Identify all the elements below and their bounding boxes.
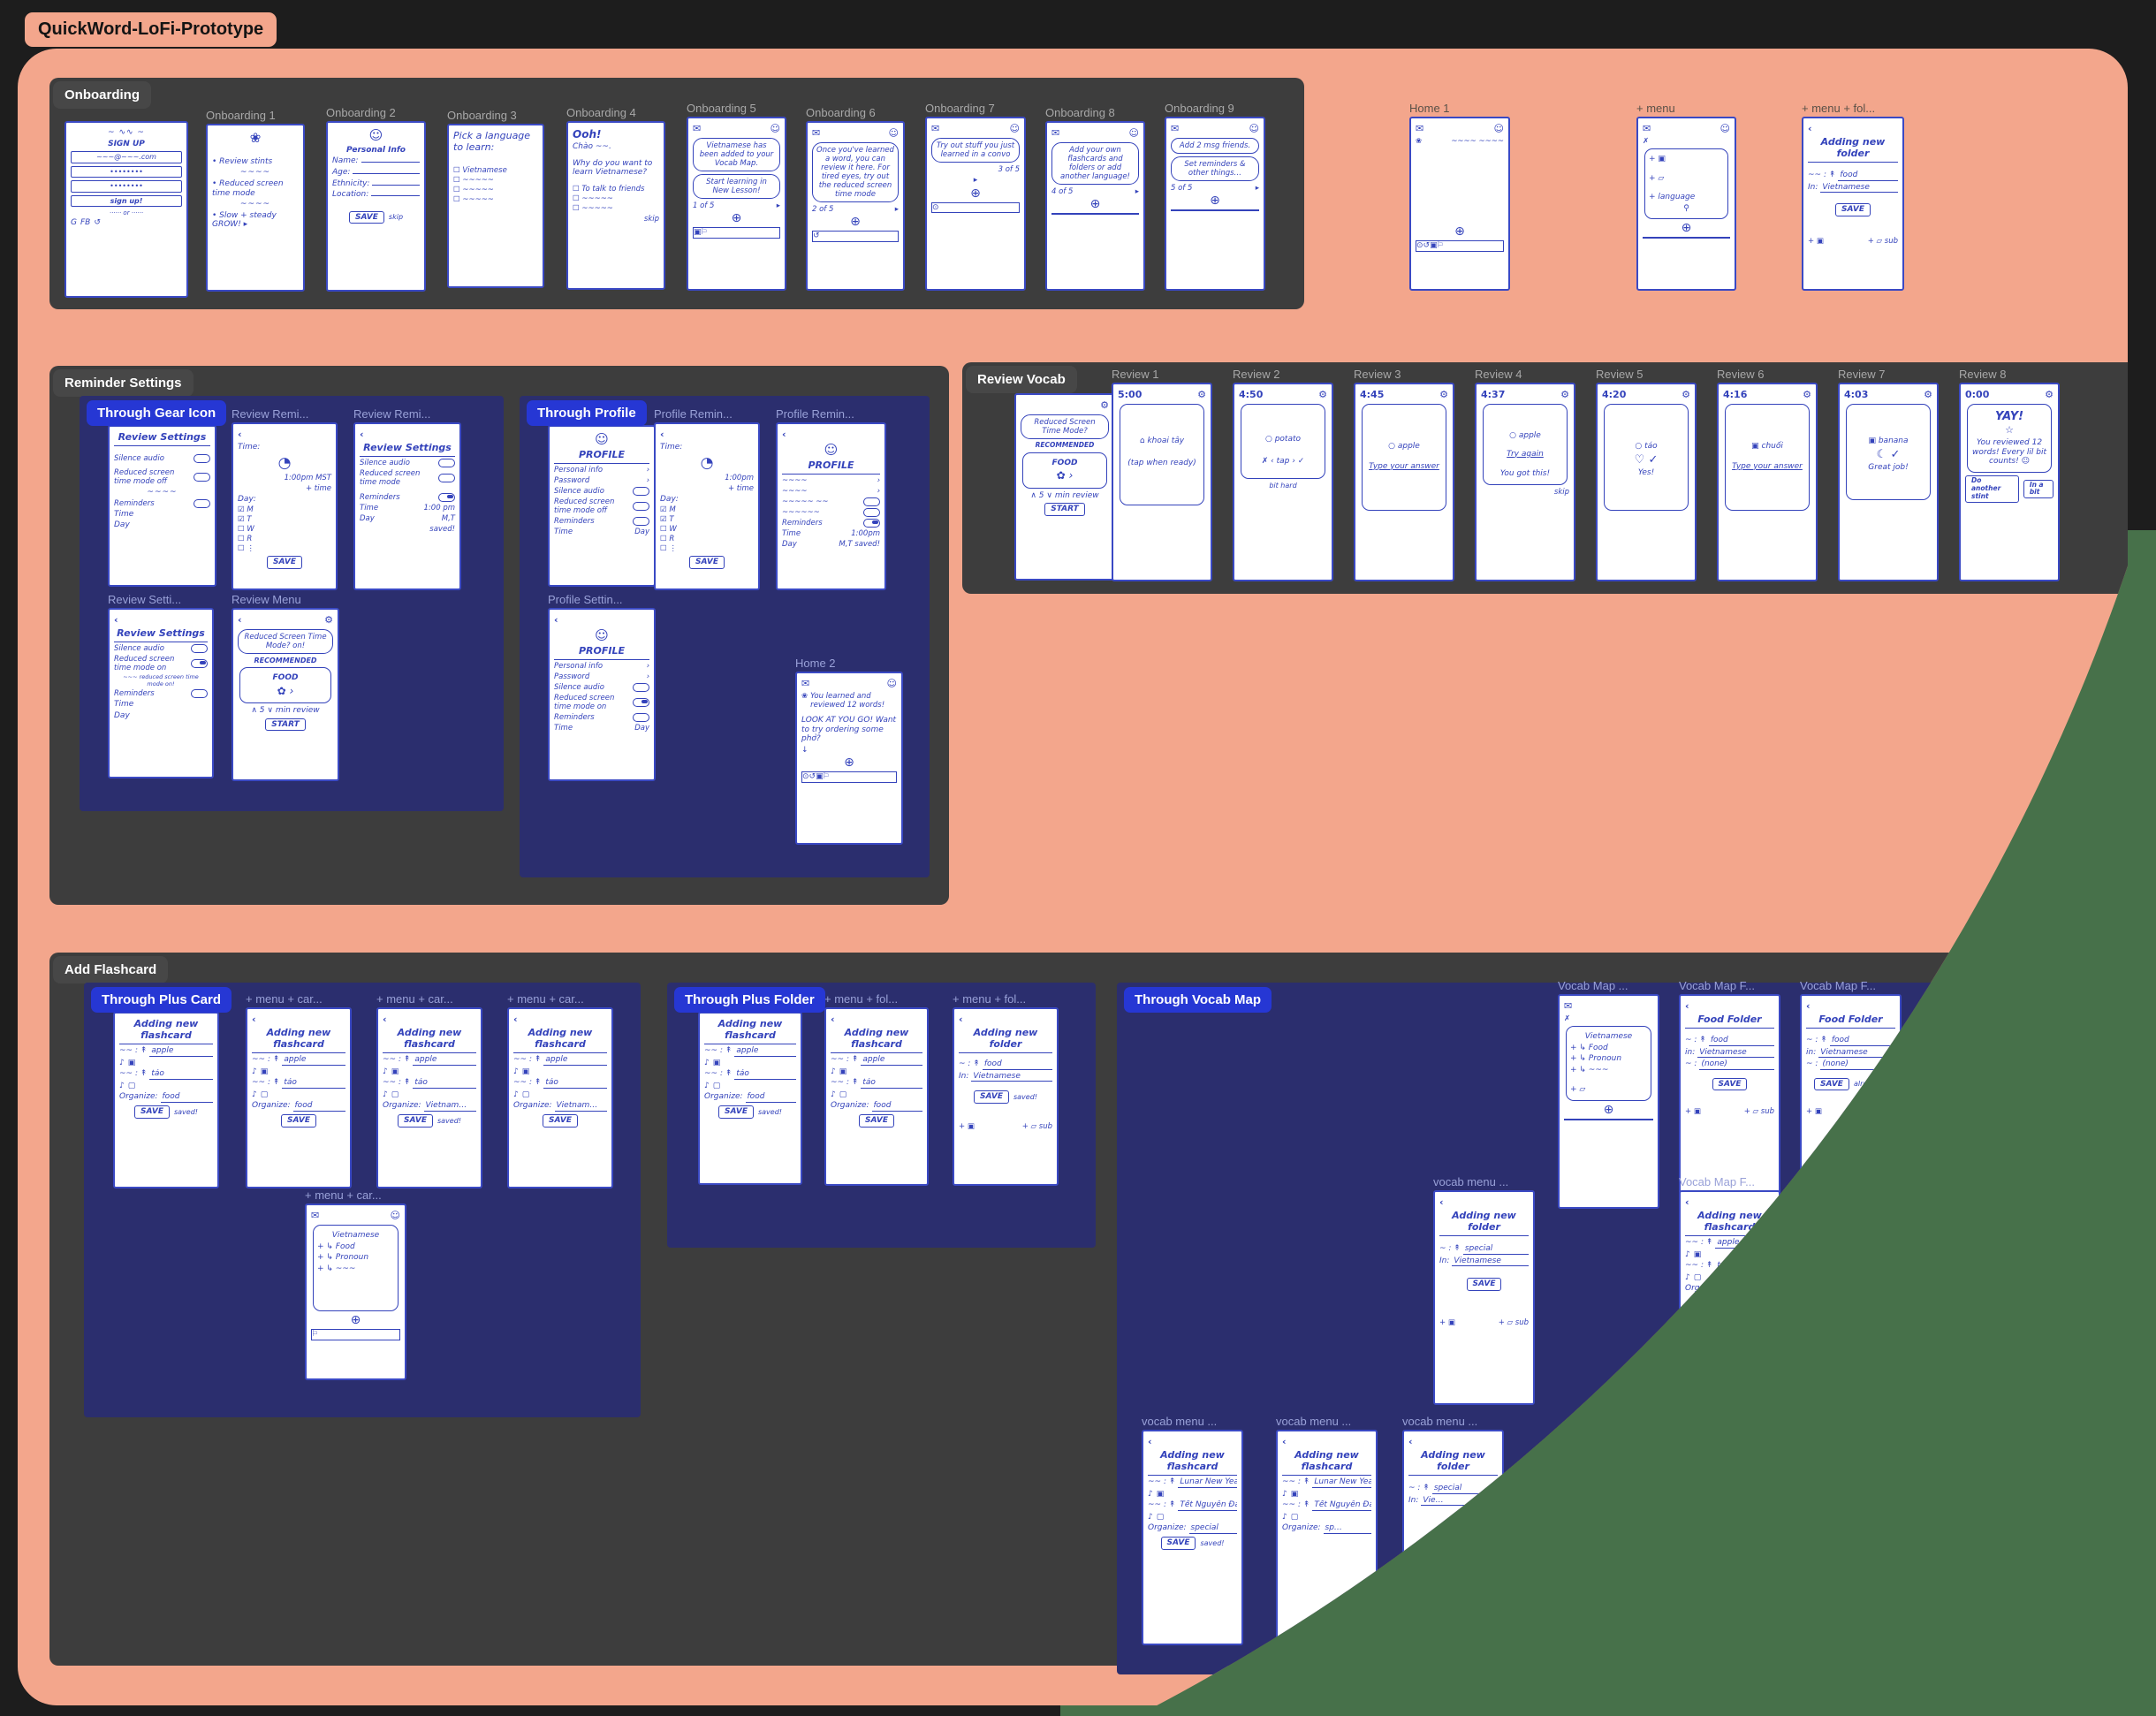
inner-card[interactable]: ⌂ khoai tây(tap when ready) <box>1120 404 1204 505</box>
frame-label-review-settings-on[interactable]: Review Setti... <box>108 593 181 606</box>
save-button[interactable]: SAVE <box>689 556 725 569</box>
field[interactable]: ~~ : ↟apple <box>831 1055 922 1066</box>
frame-review-8[interactable]: 0:00⚙YAY!☆You reviewed 12 words! Every l… <box>1959 383 2060 581</box>
toggle-switch[interactable] <box>191 659 208 668</box>
toggle-switch[interactable] <box>633 713 649 722</box>
statusbar-left-icon[interactable]: ‹ <box>959 1014 963 1026</box>
frame-menu-fol-card[interactable]: ‹Adding new flashcard~~ : ↟apple♪▣~~ : ↟… <box>824 1007 929 1186</box>
statusbar-left-icon[interactable]: 4:37 <box>1481 390 1505 401</box>
toggle-switch[interactable] <box>191 689 208 698</box>
audio-icon[interactable]: ♪ <box>252 1067 257 1077</box>
frame-onboarding-5[interactable]: ✉☺Vietnamese has been added to your Voca… <box>687 117 786 291</box>
bottom-navbar[interactable]: ⊙↺▣⚐ <box>1416 240 1504 252</box>
frame-home-1[interactable]: ✉☺❀~~~~ ~~~~⊕⊙↺▣⚐ <box>1409 117 1510 291</box>
frame-vocab-map-menu[interactable]: ✉✗Vietnamese+ ↳ Food+ ↳ Pronoun+ ↳ ~~~+ … <box>1558 994 1659 1209</box>
statusbar-left-icon[interactable]: ‹ <box>831 1014 835 1026</box>
frame-review-6[interactable]: 4:16⚙▣ chuốiType your answer <box>1717 383 1818 581</box>
image-icon[interactable]: ▣ <box>1291 1490 1299 1500</box>
field[interactable]: ~~ : ↟táo <box>513 1078 607 1089</box>
statusbar-left-icon[interactable]: ‹ <box>1148 1437 1152 1448</box>
inner-card[interactable]: ▣ chuốiType your answer <box>1725 404 1810 511</box>
audio-icon[interactable]: ♪ <box>119 1082 125 1091</box>
field[interactable]: Organize:food <box>831 1101 922 1112</box>
checkbox-item[interactable]: ☐ W <box>660 525 754 534</box>
checkbox-item[interactable]: ☐ ~~~~~ <box>453 195 538 204</box>
field[interactable]: Ethnicity: <box>332 179 420 189</box>
frame-profile-reminder-saved[interactable]: ‹☺PROFILE~~~~›~~~~›~~~~~ ~~~~~~~~Reminde… <box>776 422 886 590</box>
navbar-cell-icon[interactable]: ⚐ <box>312 1330 318 1340</box>
statusbar-left-icon[interactable]: ‹ <box>554 615 558 626</box>
frame-label-onboarding-4[interactable]: Onboarding 4 <box>566 106 636 119</box>
audio-icon[interactable]: ♪ <box>513 1090 519 1100</box>
frame-label-onboarding-3[interactable]: Onboarding 3 <box>447 109 517 122</box>
frame-label-menu-card-vietnamese-saved[interactable]: + menu + car... <box>376 992 453 1006</box>
field-value[interactable]: apple <box>734 1046 796 1057</box>
bottom-navbar[interactable] <box>1051 213 1139 215</box>
image-icon[interactable]: ▢ <box>1694 1273 1702 1283</box>
toggle[interactable]: Silence audio <box>554 683 649 692</box>
frame-label-home-1[interactable]: Home 1 <box>1409 102 1450 115</box>
frame-profile-settings-on[interactable]: ‹☺PROFILEPersonal info›Password›Silence … <box>548 608 656 781</box>
field-value[interactable]: food <box>1830 1036 1895 1046</box>
frame-label-review-4[interactable]: Review 4 <box>1475 368 1522 381</box>
statusbar-left-icon[interactable]: ✉ <box>311 1211 319 1222</box>
field[interactable]: ~~ : ↟apple <box>252 1055 345 1066</box>
frame-profile-reminder-time[interactable]: ‹Time:◔1:00pm+ timeDay:☑ M☑ T☐ W☐ R☐ ⋮SA… <box>654 422 760 590</box>
field[interactable]: ~~ : ↟apple <box>513 1055 607 1066</box>
field-value[interactable]: táo <box>282 1078 345 1089</box>
audio-icon[interactable]: ♪ <box>252 1090 257 1100</box>
field-value[interactable]: apple <box>543 1055 607 1066</box>
toggle-switch[interactable] <box>438 474 455 482</box>
statusbar-right-icon[interactable]: ☺ <box>1010 124 1020 135</box>
save-button[interactable]: SAVE <box>1712 1078 1748 1091</box>
frame-label-vocab-menu-lunar[interactable]: vocab menu ... <box>1276 1415 1351 1428</box>
statusbar-left-icon[interactable]: ‹ <box>238 615 242 626</box>
audio-icon[interactable]: ♪ <box>383 1067 388 1077</box>
input-box[interactable]: ~~~@~~~.com <box>71 151 182 163</box>
field-value[interactable]: food <box>983 1059 1052 1070</box>
frame-label-review-6[interactable]: Review 6 <box>1717 368 1764 381</box>
statusbar-left-icon[interactable]: ‹ <box>1808 124 1812 135</box>
frame-label-review-reminder-saved[interactable]: Review Remi... <box>353 407 430 421</box>
statusbar-left-icon[interactable]: 4:45 <box>1360 390 1384 401</box>
checkbox-item[interactable]: ☐ ~~~~~ <box>453 186 538 194</box>
toggle-switch[interactable] <box>633 698 649 707</box>
navbar-cell-icon[interactable]: ⚐ <box>824 772 830 782</box>
image-icon[interactable]: G <box>71 218 77 228</box>
statusbar-left-icon[interactable]: ‹ <box>383 1014 387 1026</box>
audio-icon[interactable]: ♪ <box>831 1067 836 1077</box>
field[interactable]: ~~ : ↟táo <box>383 1078 476 1089</box>
toggle[interactable]: Silence audio <box>114 644 208 653</box>
save-button[interactable]: SAVE <box>1467 1278 1502 1291</box>
frame-label-onboarding-8[interactable]: Onboarding 8 <box>1045 106 1115 119</box>
frame-label-review-3[interactable]: Review 3 <box>1354 368 1401 381</box>
navbar-cell-icon[interactable]: ⊙ <box>802 772 809 782</box>
statusbar-right-icon[interactable]: ⚙ <box>1100 400 1109 412</box>
field[interactable]: Organize:food <box>252 1101 345 1112</box>
navbar-cell-icon[interactable]: ↺ <box>809 772 816 782</box>
image-icon[interactable]: ▢ <box>522 1090 530 1100</box>
field-value[interactable]: táo <box>543 1078 607 1089</box>
section-tab-add-flashcard[interactable]: Add Flashcard <box>53 956 168 983</box>
frame-review-5[interactable]: 4:20⚙○ táo♡ ✓Yes! <box>1596 383 1697 581</box>
toggle-switch[interactable] <box>863 497 880 506</box>
image-icon[interactable]: ▣ <box>1694 1250 1702 1260</box>
frame-label-menu-card-vietnamese[interactable]: + menu + car... <box>507 992 584 1006</box>
field[interactable]: ~~ : ↟táo <box>119 1069 213 1080</box>
field-value[interactable]: Tết Nguyên Đán <box>1178 1500 1237 1511</box>
bottom-navbar[interactable] <box>1564 1119 1653 1120</box>
statusbar-right-icon[interactable]: ☺ <box>887 679 897 690</box>
checkbox-item[interactable]: ☐ ⋮ <box>238 544 331 553</box>
frame-review-menu[interactable]: ‹⚙Reduced Screen Time Mode? on!RECOMMEND… <box>232 608 339 781</box>
toggle-switch[interactable] <box>194 473 210 482</box>
plus-button[interactable]: ⊕ <box>931 187 1020 200</box>
field[interactable]: ~~ : ↟apple <box>704 1046 796 1057</box>
save-button[interactable]: SAVE <box>543 1114 578 1128</box>
navbar-cell-icon[interactable]: ⚐ <box>702 228 708 238</box>
navbar-cell-icon[interactable]: ⊙ <box>1416 241 1423 251</box>
plus-button[interactable]: ⊕ <box>1051 198 1139 210</box>
field-value[interactable]: táo <box>861 1078 922 1089</box>
field-value[interactable]: Vietnamese <box>1452 1257 1529 1267</box>
frame-label-review-8[interactable]: Review 8 <box>1959 368 2006 381</box>
frame-label-review-reminder-time[interactable]: Review Remi... <box>232 407 308 421</box>
plus-button[interactable]: ⊕ <box>693 212 780 224</box>
field-value[interactable]: food <box>1709 1036 1774 1046</box>
section-tab-reminder-settings[interactable]: Reminder Settings <box>53 369 194 397</box>
frame-label-vocab-map-menu[interactable]: Vocab Map ... <box>1558 979 1628 992</box>
board-tag-through-gear-icon[interactable]: Through Gear Icon <box>87 400 226 426</box>
field[interactable]: Organize:Vietnam… <box>513 1101 607 1112</box>
toggle-switch[interactable] <box>191 644 208 653</box>
audio-icon[interactable]: ♪ <box>704 1082 710 1091</box>
toggle[interactable]: Silence audio <box>554 487 649 496</box>
frame-plus-menu[interactable]: ✉☺✗+ ▣+ ▱+ language⚲⊕ <box>1636 117 1736 291</box>
bottom-navbar[interactable] <box>1643 237 1730 239</box>
frame-label-menu-fol-new-folder[interactable]: + menu + fol... <box>953 992 1026 1006</box>
save-button[interactable]: SAVE <box>267 556 302 569</box>
checkbox-item[interactable]: ☐ R <box>238 535 331 543</box>
statusbar-right-icon[interactable]: ☺ <box>391 1211 400 1222</box>
inner-card[interactable]: ▣ banana☾ ✓Great job! <box>1846 404 1931 500</box>
statusbar-left-icon[interactable]: 5:00 <box>1118 390 1142 401</box>
frame-label-review-2[interactable]: Review 2 <box>1233 368 1279 381</box>
frame-onboarding-3[interactable]: Pick a language to learn:☐ Vietnamese☐ ~… <box>447 124 544 288</box>
field[interactable]: Name: <box>332 156 420 166</box>
save-button[interactable]: SAVE <box>134 1105 170 1119</box>
frame-label-menu-fol-card[interactable]: + menu + fol... <box>824 992 898 1006</box>
plus-button[interactable]: ⊕ <box>1643 222 1730 234</box>
field-value[interactable]: Vietnamese <box>971 1072 1052 1082</box>
frame-profile-menu[interactable]: ☺PROFILEPersonal info›Password›Silence a… <box>548 425 656 587</box>
field[interactable]: ~~ : ↟Tết Nguyên Đán <box>1148 1500 1237 1511</box>
frame-menu-card-food[interactable]: ‹Adding new flashcard~~ : ↟apple♪▣~~ : ↟… <box>246 1007 352 1188</box>
frame-menu-card-vocab-list[interactable]: ✉☺Vietnamese+ ↳ Food+ ↳ Pronoun+ ↳ ~~~⊕⚐ <box>305 1203 406 1380</box>
save-button[interactable]: SAVE <box>398 1114 433 1128</box>
statusbar-right-icon[interactable]: ⚙ <box>1318 390 1327 401</box>
frame-review-1[interactable]: 5:00⚙⌂ khoai tây(tap when ready) <box>1112 383 1212 581</box>
navbar-cell-icon[interactable]: ⊙ <box>932 203 939 213</box>
statusbar-right-icon[interactable]: ⚙ <box>1924 390 1932 401</box>
save-button[interactable]: SAVE <box>1161 1537 1196 1550</box>
save-button[interactable]: SAVE <box>859 1114 894 1128</box>
board-tag-through-plus-card[interactable]: Through Plus Card <box>91 987 232 1013</box>
frame-onboarding-2[interactable]: ☺Personal InfoName: Age: Ethnicity: Loca… <box>326 121 426 292</box>
field[interactable]: in:Vietnamese <box>1685 1048 1774 1059</box>
field[interactable]: In:Vietnamese <box>959 1072 1052 1082</box>
field-value[interactable]: Tết Nguyên Đán <box>1312 1500 1371 1511</box>
statusbar-right-icon[interactable]: ☺ <box>1494 124 1504 135</box>
frame-label-profile-reminder-time[interactable]: Profile Remin... <box>654 407 733 421</box>
statusbar-left-icon[interactable]: 4:20 <box>1602 390 1626 401</box>
statusbar-right-icon[interactable]: ⚙ <box>1682 390 1690 401</box>
toggle[interactable]: Silence audio <box>114 454 210 463</box>
inner-card[interactable]: ○ appleType your answer <box>1362 404 1446 511</box>
field-value[interactable] <box>353 173 420 174</box>
frame-vocab-menu-lunar-saved[interactable]: ‹Adding new flashcard~~ : ↟Lunar New Yea… <box>1142 1430 1243 1645</box>
frame-vocab-menu-new-folder[interactable]: ‹Adding new folder~ : ↟specialIn:Vietnam… <box>1433 1190 1535 1405</box>
field-value[interactable]: food <box>293 1101 345 1112</box>
field-value[interactable]: food <box>161 1092 213 1103</box>
statusbar-left-icon[interactable]: ‹ <box>660 429 664 441</box>
statusbar-left-icon[interactable]: ✉ <box>1643 124 1651 135</box>
frame-label-onboarding-1[interactable]: Onboarding 1 <box>206 109 276 122</box>
inner-card[interactable]: ○ potato✗ ‹ tap › ✓ <box>1241 404 1325 479</box>
statusbar-left-icon[interactable]: ‹ <box>782 429 786 441</box>
plus-button[interactable]: ⊕ <box>1416 225 1504 238</box>
frame-label-vocab-map-food-folder-2[interactable]: Vocab Map F... <box>1800 979 1876 992</box>
image-icon[interactable]: ▢ <box>1291 1513 1299 1522</box>
statusbar-right-icon[interactable]: ☺ <box>1720 124 1730 135</box>
field-value[interactable]: Vietnam… <box>555 1101 607 1112</box>
checkbox-item[interactable]: ☐ Vietnamese <box>453 166 538 175</box>
statusbar-left-icon[interactable]: ✉ <box>1171 124 1179 135</box>
image-icon[interactable]: ▢ <box>261 1090 269 1100</box>
image-icon[interactable]: FB <box>80 218 90 228</box>
frame-onboarding-1[interactable]: ❀• Review stints~~~~• Reduced screen tim… <box>206 124 305 292</box>
field-value[interactable]: apple <box>282 1055 345 1066</box>
field[interactable]: ~ :(none) <box>1685 1059 1774 1070</box>
toggle-switch[interactable] <box>633 502 649 511</box>
audio-icon[interactable]: ♪ <box>1148 1490 1153 1500</box>
field-value[interactable]: special <box>1189 1523 1237 1534</box>
statusbar-right-icon[interactable]: ⚙ <box>1439 390 1448 401</box>
statusbar-right-icon[interactable]: ☺ <box>889 128 899 140</box>
statusbar-left-icon[interactable]: ‹ <box>1685 1001 1689 1013</box>
field[interactable]: Organize:food <box>119 1092 213 1103</box>
statusbar-right-icon[interactable]: ☺ <box>771 124 780 135</box>
board-tag-through-profile[interactable]: Through Profile <box>527 400 647 426</box>
inner-card[interactable]: Vietnamese+ ↳ Food+ ↳ Pronoun+ ↳ ~~~ <box>313 1225 399 1311</box>
bottom-navbar[interactable]: ⚐ <box>311 1329 400 1340</box>
frame-review-reminder-saved[interactable]: ‹Review SettingsSilence audioReduced scr… <box>353 422 461 590</box>
field-value[interactable]: Vietnamese <box>1820 183 1898 194</box>
toggle-switch[interactable] <box>633 487 649 496</box>
frame-onboarding-4[interactable]: Ooh!Chào ~~.Why do you want to learn Vie… <box>566 121 665 290</box>
frame-folder-card-food-saved[interactable]: Adding new flashcard~~ : ↟apple♪▣~~ : ↟t… <box>698 1012 802 1185</box>
field-value[interactable]: apple <box>413 1055 476 1066</box>
statusbar-left-icon[interactable]: ✉ <box>1051 128 1059 140</box>
field[interactable]: Organize:special <box>1148 1523 1237 1534</box>
toggle-switch[interactable] <box>633 683 649 692</box>
field-value[interactable]: Vietnam… <box>424 1101 476 1112</box>
toggle[interactable]: Reduced screen time mode off <box>554 497 649 515</box>
toggle[interactable]: ~~~~~ ~~ <box>782 497 880 506</box>
frame-label-profile-reminder-saved[interactable]: Profile Remin... <box>776 407 854 421</box>
checkbox-item[interactable]: ☐ ~~~~~ <box>453 176 538 185</box>
field-value[interactable]: Lunar New Year <box>1178 1477 1237 1488</box>
field-value[interactable]: táo <box>413 1078 476 1089</box>
frame-label-review-5[interactable]: Review 5 <box>1596 368 1643 381</box>
bottom-navbar[interactable]: ↺ <box>812 231 899 242</box>
statusbar-left-icon[interactable]: ‹ <box>238 429 242 441</box>
page-title-tab[interactable]: QuickWord-LoFi-Prototype <box>25 12 277 47</box>
image-icon[interactable]: ▢ <box>839 1090 847 1100</box>
field-value[interactable]: (none) <box>1699 1059 1774 1070</box>
plus-button[interactable]: ⊕ <box>801 756 897 769</box>
frame-label-vocab-menu-lunar-saved[interactable]: vocab menu ... <box>1142 1415 1217 1428</box>
checkbox-item[interactable]: ☑ M <box>238 505 331 514</box>
checkbox-item[interactable]: ☑ M <box>660 505 754 514</box>
frame-signup[interactable]: ~ ∿∿ ~SIGN UP~~~@~~~.com••••••••••••••••… <box>65 121 188 298</box>
field-value[interactable]: táo <box>149 1069 213 1080</box>
frame-label-onboarding-7[interactable]: Onboarding 7 <box>925 102 995 115</box>
frame-label-menu-card-vocab-list[interactable]: + menu + car... <box>305 1188 382 1202</box>
board-tag-through-plus-folder[interactable]: Through Plus Folder <box>674 987 825 1013</box>
statusbar-left-icon[interactable]: ✉ <box>812 128 820 140</box>
field[interactable]: Organize:sp… <box>1282 1523 1371 1534</box>
audio-icon[interactable]: ♪ <box>831 1090 836 1100</box>
statusbar-left-icon[interactable]: ‹ <box>1806 1001 1811 1013</box>
bottom-navbar[interactable]: ⊙↺▣⚐ <box>801 771 897 783</box>
statusbar-left-icon[interactable]: ✉ <box>931 124 939 135</box>
frame-label-onboarding-2[interactable]: Onboarding 2 <box>326 106 396 119</box>
checkbox-item[interactable]: ☑ T <box>238 515 331 524</box>
image-icon[interactable]: ▣ <box>391 1067 399 1077</box>
frame-review-4[interactable]: 4:37⚙○ appleTry againYou got this!skip <box>1475 383 1575 581</box>
field[interactable]: ~ : ↟special <box>1439 1244 1529 1255</box>
field-value[interactable]: apple <box>861 1055 922 1066</box>
inner-card[interactable]: FOOD✿ › <box>1022 452 1107 489</box>
frame-label-plus-menu-folder[interactable]: + menu + fol... <box>1802 102 1875 115</box>
toggle-switch[interactable] <box>438 459 455 467</box>
frame-review-settings-on[interactable]: ‹Review SettingsSilence audioReduced scr… <box>108 608 214 778</box>
frame-label-menu-card-food[interactable]: + menu + car... <box>246 992 323 1006</box>
field[interactable]: ~~ : ↟táo <box>704 1069 796 1080</box>
checkbox-item[interactable]: ☐ R <box>660 535 754 543</box>
field[interactable]: ~~ : ↟táo <box>252 1078 345 1089</box>
frame-label-profile-settings-on[interactable]: Profile Settin... <box>548 593 623 606</box>
audio-icon[interactable]: ♪ <box>1282 1513 1287 1522</box>
toggle[interactable]: Reduced screen time mode off <box>114 468 210 486</box>
field[interactable]: ~ : ↟food <box>1806 1036 1895 1046</box>
statusbar-left-icon[interactable]: 4:16 <box>1723 390 1747 401</box>
choice-button[interactable]: In a bit <box>2023 480 2054 499</box>
field[interactable]: ~~ : ↟food <box>1808 171 1898 181</box>
field[interactable]: In:Vietnamese <box>1439 1257 1529 1267</box>
inner-card[interactable]: + ▣+ ▱+ language⚲ <box>1644 148 1728 219</box>
navbar-cell-icon[interactable]: ⚐ <box>1438 241 1444 251</box>
toggle[interactable]: Reduced screen time mode <box>360 469 455 487</box>
frame-review-reminder-time[interactable]: ‹Time:◔1:00pm MST+ timeDay:☑ M☑ T☐ W☐ R☐… <box>232 422 338 590</box>
field-value[interactable]: Vietnamese <box>1697 1048 1774 1059</box>
frame-review-vocab-start[interactable]: ⚙Reduced Screen Time Mode?RECOMMENDEDFOO… <box>1014 393 1115 581</box>
audio-icon[interactable]: ♪ <box>1148 1513 1153 1522</box>
statusbar-left-icon[interactable]: ‹ <box>1685 1197 1689 1209</box>
bottom-navbar[interactable] <box>1171 209 1259 211</box>
field[interactable]: Location: <box>332 190 420 200</box>
field[interactable]: ~~ : ↟Lunar New Year <box>1148 1477 1237 1488</box>
field-value[interactable]: táo <box>734 1069 796 1080</box>
image-icon[interactable]: ↺ <box>94 218 101 228</box>
start-button[interactable]: START <box>265 718 306 732</box>
statusbar-left-icon[interactable]: ✉ <box>693 124 701 135</box>
field-value[interactable] <box>372 185 420 186</box>
image-icon[interactable]: ▣ <box>1157 1490 1165 1500</box>
input-box[interactable]: •••••••• <box>71 166 182 178</box>
image-icon[interactable]: ▢ <box>713 1082 721 1091</box>
frame-label-vocab-map-food-folder[interactable]: Vocab Map F... <box>1679 979 1755 992</box>
field-value[interactable]: apple <box>149 1046 213 1057</box>
bottom-navbar[interactable]: ▣⚐ <box>693 227 780 239</box>
frame-label-onboarding-9[interactable]: Onboarding 9 <box>1165 102 1234 115</box>
toggle[interactable]: Reduced screen time mode on <box>114 655 208 672</box>
field[interactable]: in:Vietnamese <box>1806 1048 1895 1059</box>
toggle[interactable]: Reminders <box>114 689 208 698</box>
field[interactable]: ~ : ↟food <box>959 1059 1052 1070</box>
audio-icon[interactable]: ♪ <box>119 1059 125 1068</box>
statusbar-left-icon[interactable]: ‹ <box>1282 1437 1287 1448</box>
frame-label-onboarding-6[interactable]: Onboarding 6 <box>806 106 876 119</box>
statusbar-left-icon[interactable]: 4:03 <box>1844 390 1868 401</box>
field[interactable]: ~~ : ↟Lunar New Year <box>1282 1477 1371 1488</box>
frame-menu-fol-new-folder[interactable]: ‹Adding new folder~ : ↟foodIn:Vietnamese… <box>953 1007 1059 1186</box>
save-button[interactable]: SAVE <box>974 1090 1009 1104</box>
input-box[interactable]: sign up! <box>71 195 182 207</box>
statusbar-right-icon[interactable]: ⚙ <box>1197 390 1206 401</box>
statusbar-left-icon[interactable]: ‹ <box>114 615 118 626</box>
toggle[interactable]: Reminders <box>554 517 649 526</box>
frame-label-onboarding-5[interactable]: Onboarding 5 <box>687 102 756 115</box>
plus-button[interactable]: ⊕ <box>311 1314 400 1326</box>
checkbox-item[interactable]: ☐ To talk to friends <box>573 185 659 194</box>
bottom-navbar[interactable]: ⊙ <box>931 202 1020 214</box>
field[interactable]: In:Vietnamese <box>1808 183 1898 194</box>
statusbar-left-icon[interactable]: ✉ <box>801 679 809 690</box>
checkbox-item[interactable]: ☐ ⋮ <box>660 544 754 553</box>
plus-button[interactable]: ⊕ <box>1171 194 1259 207</box>
save-button[interactable]: SAVE <box>281 1114 316 1128</box>
statusbar-right-icon[interactable]: ⚙ <box>2045 390 2054 401</box>
toggle[interactable]: Reminders <box>114 499 210 508</box>
navbar-cell-icon[interactable]: ↺ <box>1423 241 1431 251</box>
checkbox-item[interactable]: ☐ W <box>238 525 331 534</box>
audio-icon[interactable]: ♪ <box>383 1090 388 1100</box>
image-icon[interactable]: ▣ <box>522 1067 530 1077</box>
toggle[interactable]: ~~~~~~ <box>782 508 880 517</box>
field-value[interactable]: sp… <box>1324 1523 1371 1534</box>
navbar-cell-icon[interactable]: ▣ <box>816 772 824 782</box>
frame-label-plus-menu[interactable]: + menu <box>1636 102 1675 115</box>
audio-icon[interactable]: ♪ <box>1685 1250 1690 1260</box>
audio-icon[interactable]: ♪ <box>1685 1273 1690 1283</box>
statusbar-right-icon[interactable]: ⚙ <box>324 615 333 626</box>
statusbar-right-icon[interactable]: ☺ <box>1249 124 1259 135</box>
frame-label-review-1[interactable]: Review 1 <box>1112 368 1158 381</box>
